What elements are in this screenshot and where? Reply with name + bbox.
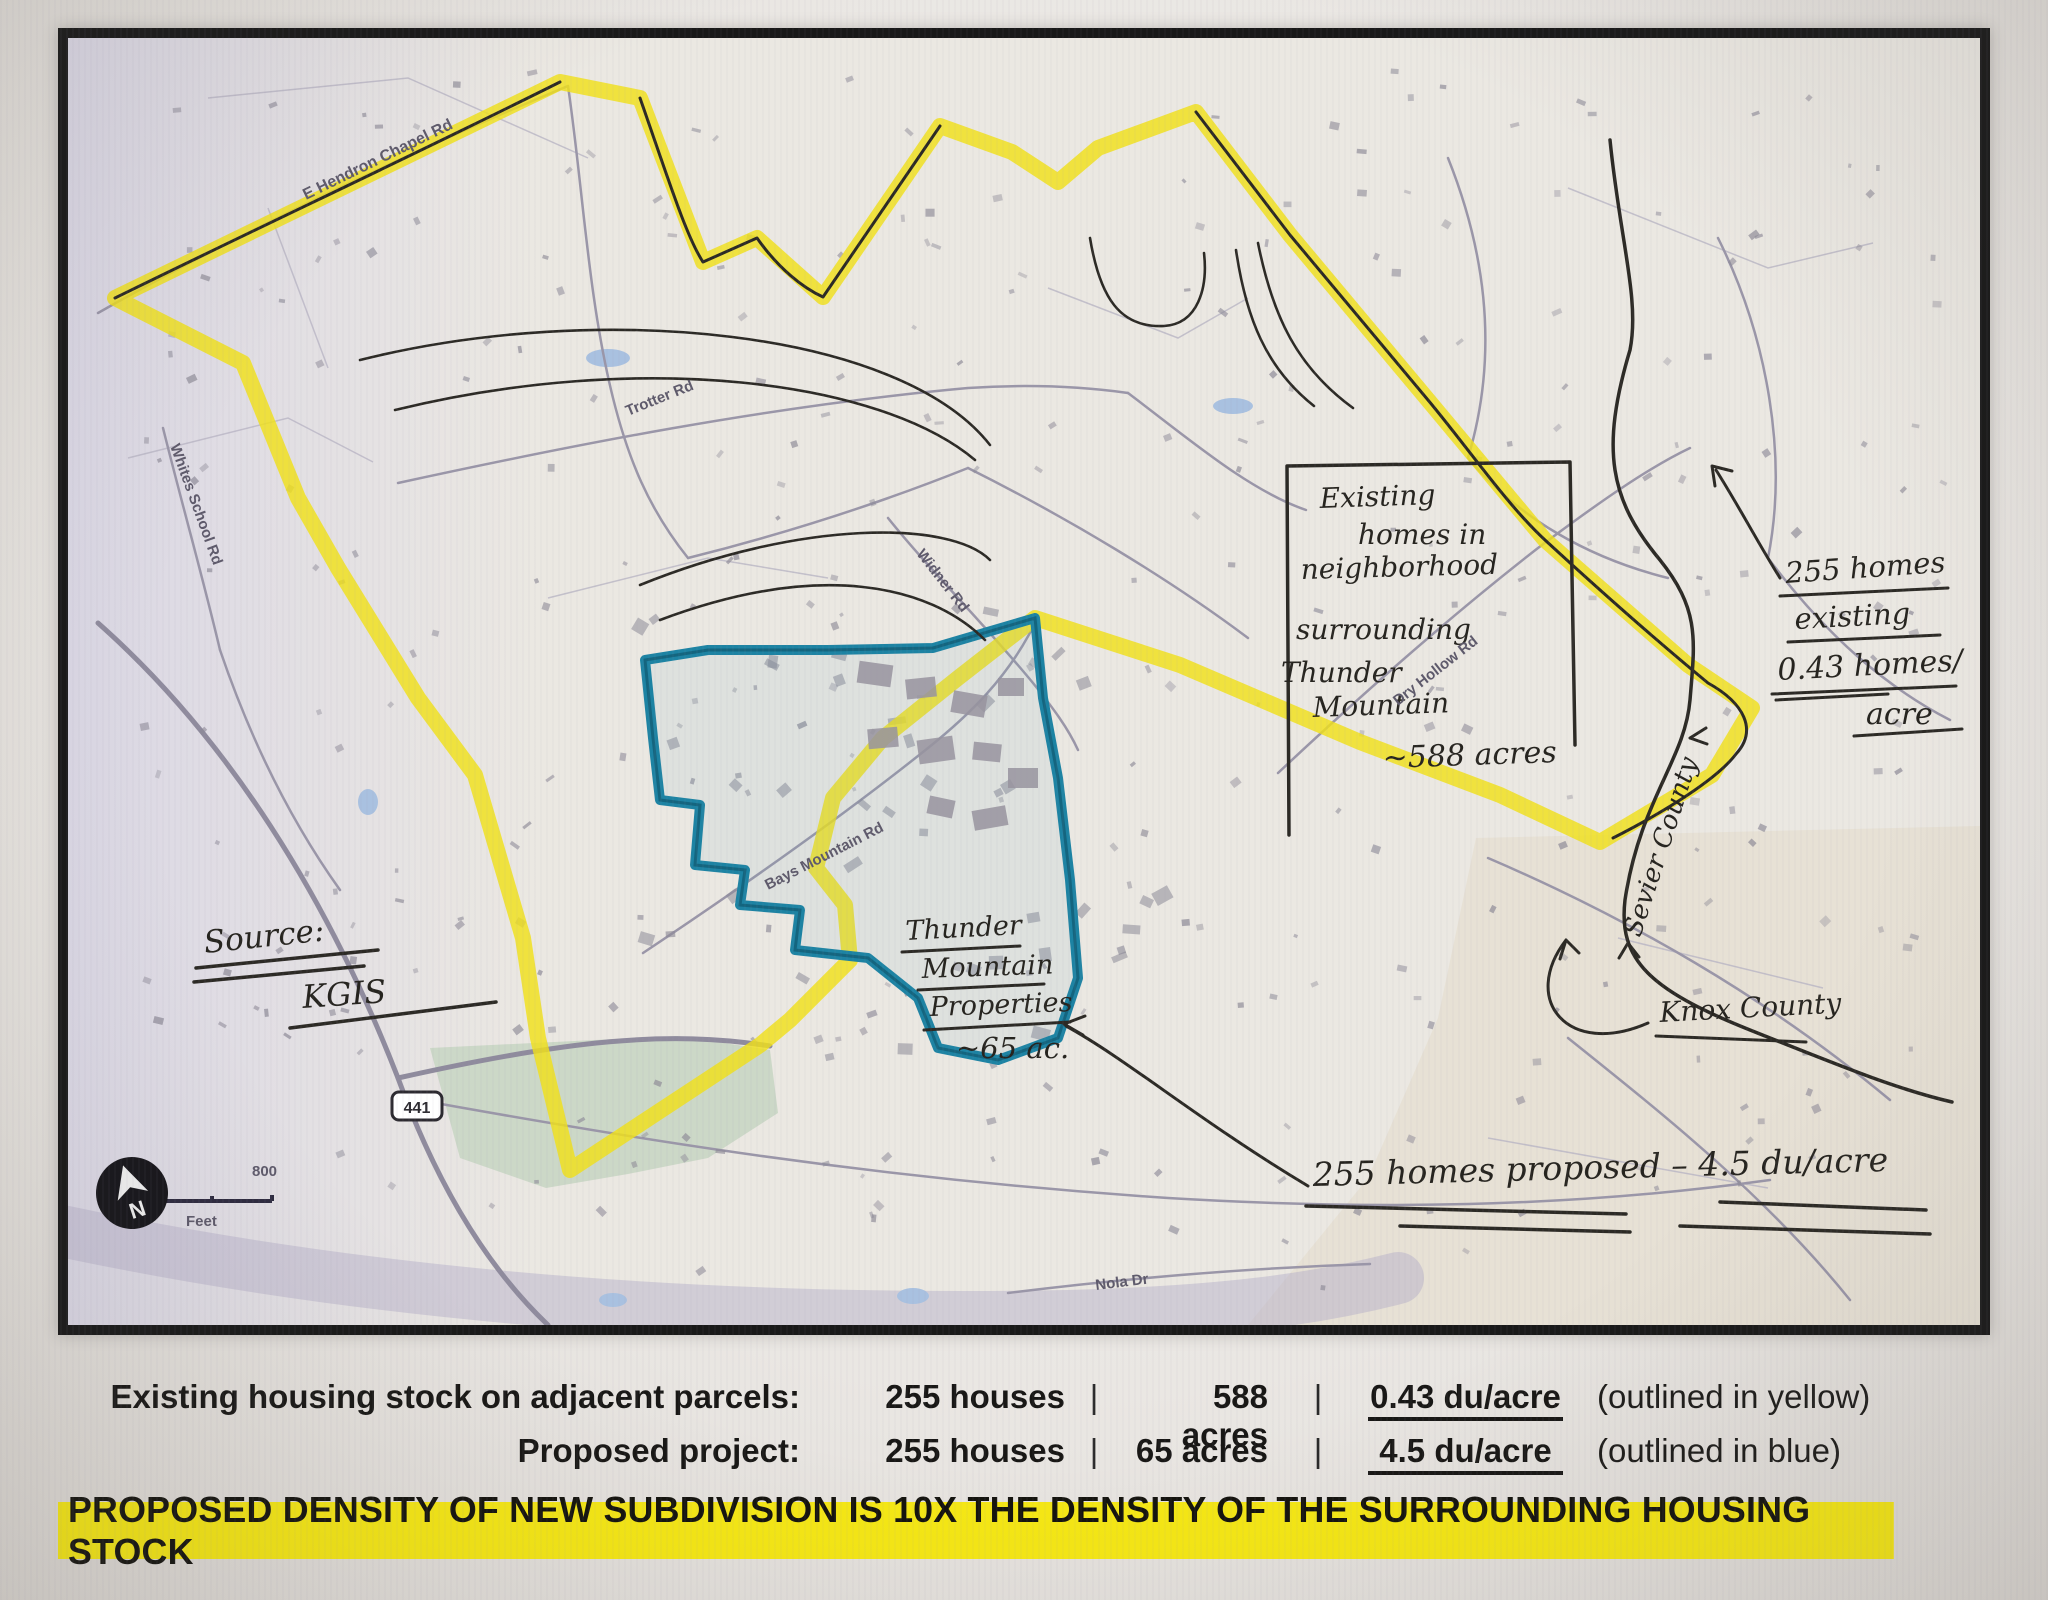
note-acreage-588: ~588 acres (1382, 735, 1557, 776)
parcel-acreage-65: ~65 ac. (956, 1031, 1069, 1065)
scale-end: 800 (252, 1163, 277, 1180)
density-conclusion-banner: PROPOSED DENSITY OF NEW SUBDIVISION IS 1… (58, 1502, 1894, 1559)
note-line-6: Mountain (1311, 686, 1450, 724)
route-441-label: 441 (404, 1100, 431, 1117)
existing-density-value: 0.43 du/acre (1368, 1378, 1563, 1421)
proposed-density-value: 4.5 du/acre (1368, 1432, 1563, 1475)
route-441-shield: 441 (392, 1092, 442, 1120)
scale-unit: Feet (186, 1213, 217, 1230)
note-line-1: Existing (1318, 478, 1436, 515)
note-line-2: homes in (1358, 518, 1486, 551)
note-line-4: surrounding (1296, 613, 1471, 646)
density-existing-line-2: acre (1866, 697, 1933, 732)
photo-of-annotated-map: Existing homes in neighborhood surroundi… (0, 0, 2048, 1600)
parcel-line-3: Properties (928, 987, 1073, 1023)
existing-row-label: Existing housing stock on adjacent parce… (0, 1378, 800, 1416)
proposed-row-label: Proposed project: (0, 1432, 800, 1470)
parcel-line-2: Mountain (920, 949, 1054, 985)
proposed-acres-value: 65 acres (1123, 1432, 1268, 1470)
existing-houses-value: 255 houses (800, 1378, 1065, 1416)
homes-existing-line-2: existing (1794, 596, 1911, 636)
annotated-parcel-map: Existing homes in neighborhood surroundi… (68, 38, 1980, 1325)
separator: | (1065, 1378, 1123, 1416)
map-frame: Existing homes in neighborhood surroundi… (58, 28, 1990, 1335)
proposed-outline-note: (outlined in blue) (1597, 1432, 1841, 1470)
proposed-houses-value: 255 houses (800, 1432, 1065, 1470)
summary-row-proposed: Proposed project: 255 houses | 65 acres … (0, 1432, 2010, 1475)
existing-outline-note: (outlined in yellow) (1597, 1378, 1870, 1416)
separator: | (1268, 1378, 1368, 1416)
parcel-line-1: Thunder (905, 910, 1025, 947)
source-value: KGIS (300, 972, 387, 1016)
note-line-3: neighborhood (1300, 548, 1498, 586)
separator: | (1268, 1432, 1368, 1470)
note-line-5: Thunder (1281, 656, 1403, 689)
separator: | (1065, 1432, 1123, 1470)
